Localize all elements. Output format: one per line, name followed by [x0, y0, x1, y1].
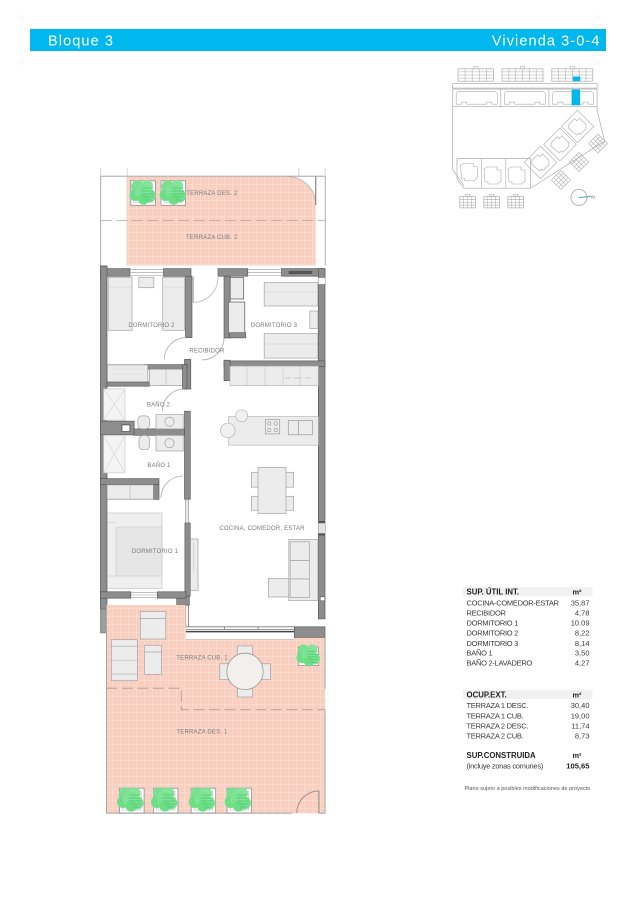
- svg-text:TERRAZA 1 DESC.: TERRAZA 1 DESC.: [467, 701, 529, 710]
- svg-text:4,27: 4,27: [575, 659, 590, 668]
- svg-text:OCUP.EXT.: OCUP.EXT.: [467, 690, 507, 699]
- svg-text:BAÑO 2: BAÑO 2: [147, 402, 171, 409]
- svg-text:DORMITORIO 1: DORMITORIO 1: [467, 619, 519, 628]
- svg-text:m²: m²: [572, 751, 582, 760]
- svg-text:TERRAZA 2 CUB.: TERRAZA 2 CUB.: [467, 732, 524, 741]
- svg-text:RECIBIDOR: RECIBIDOR: [189, 349, 225, 355]
- svg-text:8,22: 8,22: [575, 629, 590, 638]
- svg-text:8,73: 8,73: [575, 732, 590, 741]
- svg-text:RECIBIDOR: RECIBIDOR: [467, 608, 507, 617]
- svg-text:COCINA-COMEDOR-ESTAR: COCINA-COMEDOR-ESTAR: [467, 598, 560, 607]
- svg-text:TERRAZA DES. 1: TERRAZA DES. 1: [176, 729, 228, 735]
- svg-text:DORMITORIO 3: DORMITORIO 3: [251, 323, 298, 329]
- svg-text:DORMITORIO 2: DORMITORIO 2: [467, 629, 519, 638]
- svg-text:SUP.CONSTRUIDA: SUP.CONSTRUIDA: [467, 751, 537, 760]
- svg-text:4,78: 4,78: [575, 608, 590, 617]
- svg-text:DORMITORIO 1: DORMITORIO 1: [132, 549, 179, 555]
- svg-text:BAÑO 1: BAÑO 1: [467, 649, 493, 658]
- svg-text:BAÑO 2-LAVADERO: BAÑO 2-LAVADERO: [467, 659, 533, 668]
- svg-text:SUP. ÚTIL INT.: SUP. ÚTIL INT.: [467, 588, 520, 597]
- svg-text:19,00: 19,00: [571, 711, 590, 720]
- svg-text:TERRAZA CUB. 1: TERRAZA CUB. 1: [176, 655, 228, 661]
- svg-text:TERRAZA 2 DESC.: TERRAZA 2 DESC.: [467, 722, 529, 731]
- svg-text:BAÑO 1: BAÑO 1: [147, 462, 171, 469]
- svg-text:m²: m²: [572, 588, 582, 597]
- svg-text:(incluye zonas comunes): (incluye zonas comunes): [467, 761, 544, 770]
- svg-text:8,14: 8,14: [575, 639, 590, 648]
- svg-text:DORMITORIO 2: DORMITORIO 2: [128, 323, 175, 329]
- svg-text:TERRAZA DES. 2: TERRAZA DES. 2: [186, 191, 238, 197]
- svg-text:N: N: [591, 195, 595, 201]
- svg-text:TERRAZA 1 CUB.: TERRAZA 1 CUB.: [467, 711, 524, 720]
- svg-text:30,40: 30,40: [571, 701, 590, 710]
- svg-text:TERRAZA CUB. 2: TERRAZA CUB. 2: [186, 235, 238, 241]
- svg-text:Vivienda 3-0-4: Vivienda 3-0-4: [492, 34, 601, 50]
- svg-text:m²: m²: [572, 690, 582, 699]
- svg-text:Bloque 3: Bloque 3: [48, 34, 114, 50]
- svg-text:Plano sujeto a posibles modifi: Plano sujeto a posibles modificaciones d…: [465, 786, 591, 792]
- svg-text:DORMITORIO 3: DORMITORIO 3: [467, 639, 519, 648]
- svg-text:10.09: 10.09: [571, 619, 590, 628]
- svg-text:11,74: 11,74: [571, 722, 589, 731]
- svg-text:COCINA, COMEDOR, ESTAR: COCINA, COMEDOR, ESTAR: [219, 526, 305, 532]
- svg-text:105,65: 105,65: [566, 761, 590, 770]
- svg-text:3,50: 3,50: [575, 649, 590, 658]
- svg-text:35,87: 35,87: [571, 598, 590, 607]
